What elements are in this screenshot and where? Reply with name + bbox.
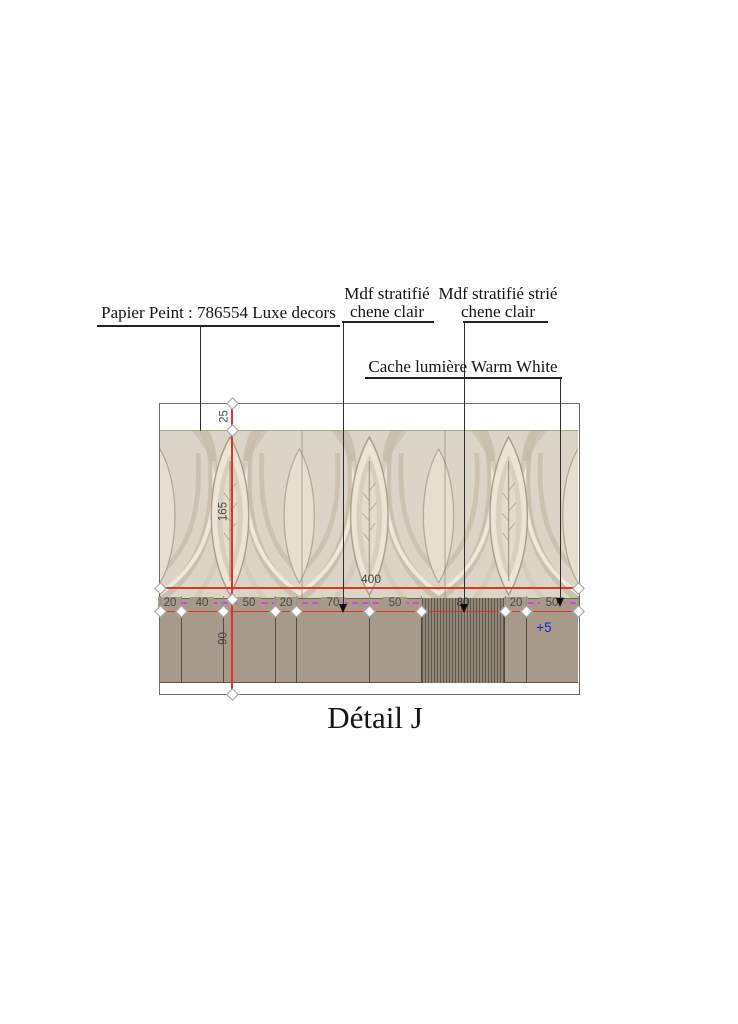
panel-division xyxy=(181,612,182,683)
mdf-clair-label: Mdf stratifié chene clair xyxy=(336,285,438,321)
down-arrow-icon xyxy=(556,598,564,607)
mdf-clair-leader-line xyxy=(343,322,344,604)
panel-division xyxy=(369,612,370,683)
mdf-strie-label-line1: Mdf stratifié strié xyxy=(434,285,562,303)
mdf-strie-underline xyxy=(463,321,548,323)
mdf-clair-underline xyxy=(342,321,434,323)
detail-drawing-page: Papier Peint : 786554 Luxe decors Mdf st… xyxy=(0,0,738,1024)
vertical-dim-165: 165 xyxy=(218,497,231,527)
papier-peint-leader-line xyxy=(200,327,201,431)
segment-dim-40: 40 xyxy=(190,597,214,610)
cache-lumiere-label: Cache lumière Warm White xyxy=(364,358,562,376)
mdf-strie-leader-line xyxy=(464,322,465,604)
panel-division xyxy=(275,612,276,683)
cache-lumiere-leader-line xyxy=(560,378,561,598)
mdf-clair-label-line2: chene clair xyxy=(336,303,438,321)
papier-peint-label: Papier Peint : 786554 Luxe decors xyxy=(97,304,340,322)
segment-dim-50b: 50 xyxy=(383,597,407,610)
panel-division xyxy=(296,612,297,683)
papier-peint-underline xyxy=(97,325,340,327)
mdf-clair-label-line1: Mdf stratifié xyxy=(336,285,438,303)
total-width-value: 400 xyxy=(349,573,393,586)
drawing-title: Détail J xyxy=(245,700,505,736)
mdf-strie-label: Mdf stratifié strié chene clair xyxy=(434,285,562,321)
panel-division xyxy=(526,612,527,683)
vertical-dimension-line xyxy=(231,403,233,694)
dimension-line-400 xyxy=(159,587,578,589)
mdf-strie-label-line2: chene clair xyxy=(434,303,562,321)
offset-note: +5 xyxy=(528,620,560,635)
vertical-dim-90: 90 xyxy=(218,624,231,654)
segment-dim-50: 50 xyxy=(237,597,261,610)
down-arrow-icon xyxy=(339,604,347,613)
down-arrow-icon xyxy=(460,604,468,613)
